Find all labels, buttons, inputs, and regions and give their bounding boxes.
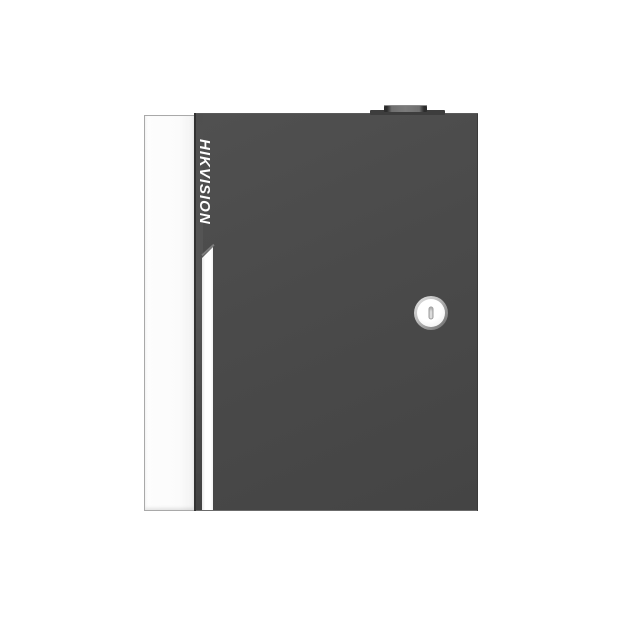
cabinet-side-panel — [144, 115, 194, 511]
lock-face — [417, 299, 445, 327]
brand-logo: HIKVISION — [195, 139, 214, 235]
product-photo: HIKVISION — [0, 0, 620, 620]
key-slot — [429, 307, 434, 320]
hinge-knob-icon — [384, 105, 427, 112]
controller-cabinet: HIKVISION — [144, 113, 478, 511]
cam-lock-icon — [414, 296, 448, 330]
accent-stripe — [202, 247, 213, 510]
